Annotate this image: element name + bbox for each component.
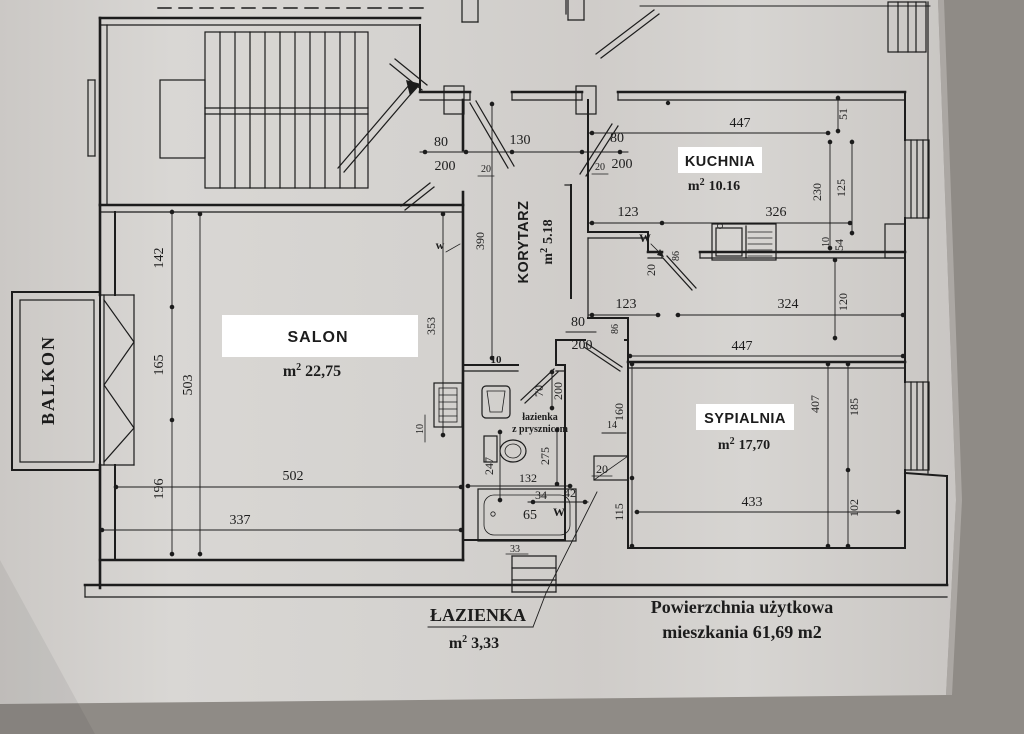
vent-symbol: W — [553, 505, 565, 519]
dim-label: 185 — [847, 398, 861, 416]
dim-label: 115 — [612, 503, 626, 521]
dim-label: 123 — [616, 297, 637, 312]
dim-label: 407 — [808, 395, 822, 413]
sypialnia-area: m217,70 — [718, 436, 770, 453]
sypialnia-label: SYPIALNIA — [704, 411, 786, 427]
dim-label: 20 — [644, 264, 658, 276]
korytarz-area: m25.18 — [539, 219, 556, 264]
usable-area-line2: mieszkania 61,69 m2 — [662, 622, 822, 642]
dim-label: 54 — [832, 239, 846, 251]
salon-area: m222,75 — [283, 362, 341, 380]
dim-label: 275 — [538, 447, 552, 465]
dim-label: 102 — [847, 499, 861, 517]
dim-label: 14 — [607, 420, 617, 431]
dim-label: 42 — [564, 486, 576, 500]
usable-area-line1: Powierzchnia użytkowa — [651, 597, 833, 617]
dim-label: 10 — [415, 424, 426, 434]
dim-label: 324 — [778, 297, 799, 312]
dim-label: 120 — [836, 293, 850, 311]
dim-label: 20 — [481, 164, 491, 175]
dim-label: 165 — [152, 355, 167, 376]
dim-label: 353 — [424, 317, 438, 335]
dim-label: 433 — [742, 495, 763, 510]
vent-symbol: W — [639, 231, 651, 245]
dim-label: 230 — [810, 183, 824, 201]
dim-label: 80 — [610, 131, 624, 146]
dim-label: 447 — [732, 339, 753, 354]
floor-plan-photo: 80 200 20 130 80 200 20 447 51 230 125 1… — [0, 0, 1024, 734]
dim-label: 125 — [834, 179, 848, 197]
dim-label: 196 — [152, 479, 167, 500]
dim-label: 390 — [473, 232, 487, 250]
dim-label: 200 — [612, 157, 633, 172]
kuchnia-area: m210.16 — [688, 177, 740, 194]
dim-label: 132 — [519, 471, 537, 485]
dim-label: 200 — [572, 338, 593, 353]
dim-label: 33 — [510, 544, 520, 555]
dim-label: 51 — [836, 108, 850, 120]
salon-label: SALON — [288, 329, 349, 346]
dim-label: 123 — [618, 205, 639, 220]
vent-symbol: w — [436, 238, 445, 252]
shower-note-line2: z prysznicem — [512, 424, 568, 435]
dim-label: 200 — [435, 159, 456, 174]
dim-label: 247 — [482, 457, 496, 475]
dim-label: 10 — [491, 354, 503, 366]
dim-label: 10 — [821, 237, 832, 247]
korytarz-label: KORYTARZ — [516, 201, 532, 284]
dim-label: 86 — [610, 324, 621, 334]
balkon-label: BALKON — [38, 335, 58, 425]
dim-label: 80 — [571, 315, 585, 330]
dim-label: 337 — [230, 513, 251, 528]
dim-label: 502 — [283, 469, 304, 484]
shower-note-line1: łazienka — [522, 412, 558, 423]
dim-label: 326 — [766, 205, 787, 220]
dim-label: 20 — [596, 462, 608, 476]
dim-label: 20 — [595, 162, 605, 173]
dim-label: 160 — [612, 403, 626, 421]
lazienka-area: m23,33 — [449, 634, 499, 652]
dim-label: 503 — [181, 375, 196, 396]
floor-plan-drawing: 80 200 20 130 80 200 20 447 51 230 125 1… — [0, 0, 1024, 734]
lazienka-label: ŁAZIENKA — [430, 605, 526, 625]
dim-label: 130 — [510, 133, 531, 148]
dim-label: 34 — [535, 488, 547, 502]
dim-label: 142 — [152, 248, 167, 269]
dim-label: 80 — [434, 135, 448, 150]
dim-label: 65 — [523, 508, 537, 523]
dim-label: 86 — [671, 251, 682, 261]
kuchnia-label: KUCHNIA — [685, 154, 755, 170]
dim-label: 447 — [730, 116, 751, 131]
dim-label: 70 — [532, 385, 546, 397]
dim-label: 200 — [551, 382, 565, 400]
